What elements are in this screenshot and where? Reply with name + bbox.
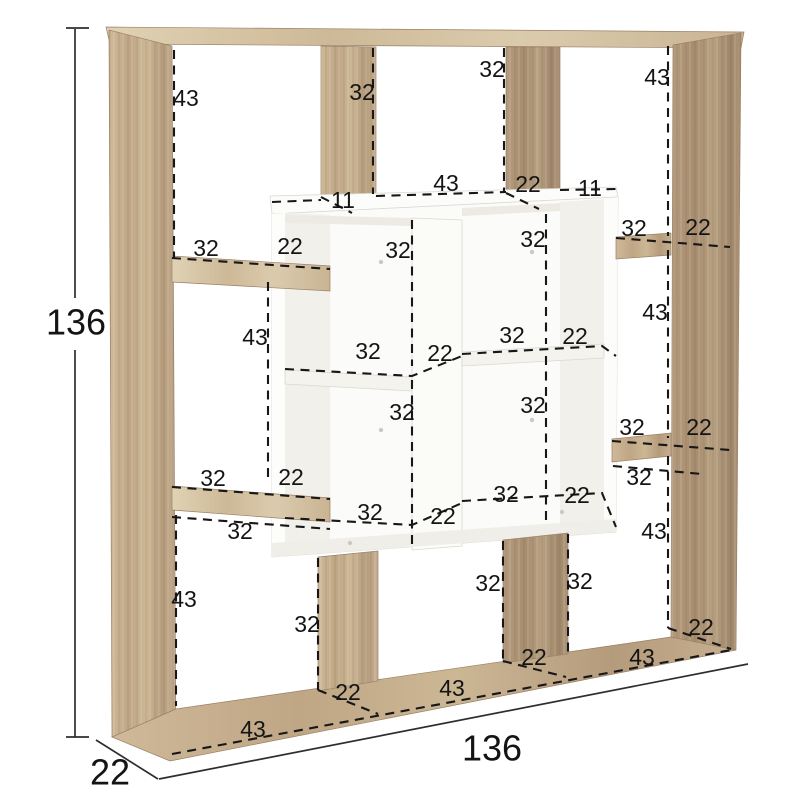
dim-label: 32 xyxy=(200,465,226,491)
product-dimension-diagram: 4332324311432211322243322232433222433222… xyxy=(0,0,800,800)
dim-label: 32 xyxy=(479,56,505,82)
dim-label: 32 xyxy=(355,338,381,364)
dim-label: 32 xyxy=(389,399,415,425)
dim-label: 32 xyxy=(385,237,411,263)
dim-label: 43 xyxy=(644,64,670,90)
dim-label: 22 xyxy=(686,414,712,440)
dim-label: 22 xyxy=(562,323,588,349)
dim-label: 43 xyxy=(642,299,668,325)
dim-label: 32 xyxy=(349,79,375,105)
dim-label: 32 xyxy=(294,611,320,637)
right-side-panel-grain xyxy=(671,33,741,650)
dim-label: 43 xyxy=(433,170,459,196)
dim-label: 22 xyxy=(685,214,711,240)
overall-width: 136 xyxy=(462,728,522,769)
dim-label: 22 xyxy=(521,644,547,670)
top-panel xyxy=(106,27,744,48)
dim-label: 22 xyxy=(564,482,590,508)
dim-label: 32 xyxy=(499,322,525,348)
overall-depth: 22 xyxy=(90,752,130,793)
bookcase-drawing: 4332324311432211322243322232433222433222… xyxy=(0,0,800,800)
dim-label: 11 xyxy=(331,187,355,213)
dim-label: 43 xyxy=(242,324,268,350)
dim-label: 32 xyxy=(475,570,501,596)
dim-label: 22 xyxy=(278,464,304,490)
bottom-divider-left-grain xyxy=(318,551,378,691)
dim-label: 32 xyxy=(567,568,593,594)
dim-label: 32 xyxy=(520,226,546,252)
dim-label: 32 xyxy=(520,392,546,418)
cube-center-divider xyxy=(412,218,462,550)
dim-label: 32 xyxy=(621,215,647,241)
dim-label: 43 xyxy=(439,675,465,701)
dim-label: 32 xyxy=(193,235,219,261)
dim-label: 22 xyxy=(688,614,714,640)
dim-label: 22 xyxy=(427,340,453,366)
dim-label: 43 xyxy=(173,85,199,111)
dim-label: 22 xyxy=(277,233,303,259)
dim-label: 32 xyxy=(626,464,652,490)
dim-label: 11 xyxy=(578,175,602,201)
dim-label: 43 xyxy=(641,518,667,544)
dim-label: 22 xyxy=(430,503,456,529)
height-dim-line xyxy=(66,28,89,737)
left-side-panel-grain xyxy=(109,30,176,758)
dim-label: 32 xyxy=(493,481,519,507)
dim-label: 43 xyxy=(629,644,655,670)
dim-label: 32 xyxy=(227,518,253,544)
dim-label: 43 xyxy=(240,716,266,742)
dim-label: 32 xyxy=(619,414,645,440)
dim-label: 32 xyxy=(357,499,383,525)
dim-label: 22 xyxy=(335,679,361,705)
dim-label: 43 xyxy=(171,586,197,612)
overall-height: 136 xyxy=(46,302,106,343)
dim-label: 22 xyxy=(515,171,541,197)
